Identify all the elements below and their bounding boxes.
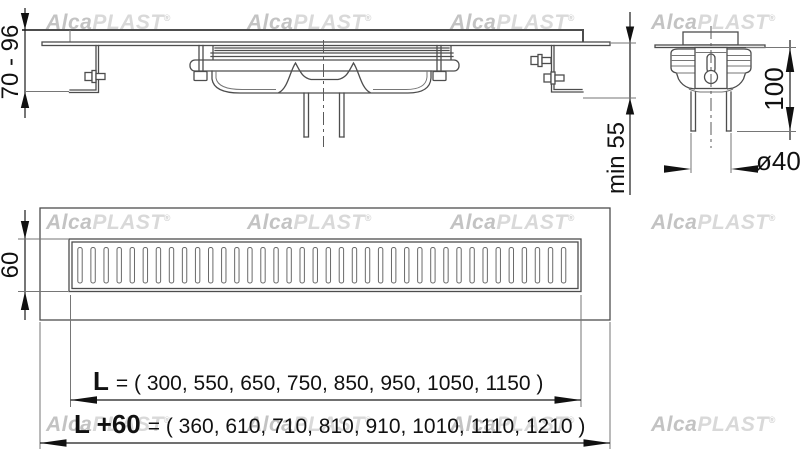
grate-slot — [339, 248, 343, 284]
length-label: L — [93, 366, 109, 396]
right-bracket — [531, 46, 583, 93]
grate-slot — [195, 248, 199, 284]
grate-slot — [509, 248, 513, 284]
grate-slot — [91, 248, 95, 284]
dim-adjustable-height: 70 - 96 — [0, 8, 69, 118]
length-values: L= ( 300, 550, 650, 750, 850, 950, 1050,… — [93, 366, 543, 396]
grate-slot — [444, 248, 448, 284]
grate-slot — [352, 248, 356, 284]
grate-slot — [248, 248, 252, 284]
grate-slot — [117, 248, 121, 284]
front-view: 70 - 96 min 55 — [0, 8, 636, 195]
length-plus-label: L +60 — [74, 409, 141, 439]
grate-slot — [418, 248, 422, 284]
flange-plate — [42, 42, 610, 46]
grate-slot — [431, 248, 435, 284]
grate-slot — [313, 248, 317, 284]
grate-slot — [143, 248, 147, 284]
grate-slot — [130, 248, 134, 284]
length-eq-values: = ( 300, 550, 650, 750, 850, 950, 1050, … — [116, 372, 544, 395]
grate-slot — [222, 248, 226, 284]
outlet-diameter-label: ø40 — [756, 146, 800, 176]
grate-slot — [261, 248, 265, 284]
grate-slot — [522, 248, 526, 284]
channel-body — [190, 40, 459, 147]
length-plus-eq-values: = ( 360, 610, 710, 810, 910, 1010, 1110,… — [148, 415, 586, 438]
grate-slot — [209, 248, 213, 284]
grate-slot — [548, 248, 552, 284]
grate-slot — [287, 248, 291, 284]
grate-slot — [156, 248, 160, 284]
grate-slot — [235, 248, 239, 284]
grate-slot — [378, 248, 382, 284]
technical-drawing-page: AlcaPLAST®AlcaPLAST®AlcaPLAST®AlcaPLAST®… — [0, 0, 800, 451]
adjustable-height-label: 70 - 96 — [0, 25, 24, 100]
grate-slot — [78, 248, 82, 284]
grate-slot — [561, 248, 565, 284]
grate-slots — [78, 248, 566, 284]
channel-width-label: 60 — [0, 252, 24, 279]
grate-slot — [496, 248, 500, 284]
grate-slot — [300, 248, 304, 284]
floor-line — [23, 30, 583, 42]
grate-slot — [274, 248, 278, 284]
plan-view: 60 L= ( 300, 550, 650, 750, 850, 950, 10… — [0, 208, 610, 449]
dim-channel-width: 60 — [0, 210, 68, 320]
length-plus-values: L +60= ( 360, 610, 710, 810, 910, 1010, … — [74, 409, 585, 439]
dim-min-depth: min 55 — [583, 12, 636, 195]
min-depth-label: min 55 — [603, 122, 630, 194]
drain-channel-technical-drawing: 70 - 96 min 55 — [0, 0, 800, 451]
grate-slot — [391, 248, 395, 284]
grate-slot — [365, 248, 369, 284]
grate-slot — [483, 248, 487, 284]
grate-slot — [470, 248, 474, 284]
grate-slot — [457, 248, 461, 284]
dim-outlet-diameter: ø40 — [664, 133, 800, 176]
grate-slot — [169, 248, 173, 284]
grate-slot — [182, 248, 186, 284]
side-view: 100 ø40 — [655, 26, 800, 176]
grate-slot — [535, 248, 539, 284]
left-bracket — [70, 46, 106, 93]
dim-length-L: L= ( 300, 550, 650, 750, 850, 950, 1050,… — [71, 295, 582, 407]
grate-slot — [104, 248, 108, 284]
channel-rim — [190, 60, 459, 71]
outlet-depth-label: 100 — [759, 67, 789, 110]
grate-slot — [326, 248, 330, 284]
grate-slot — [405, 248, 409, 284]
